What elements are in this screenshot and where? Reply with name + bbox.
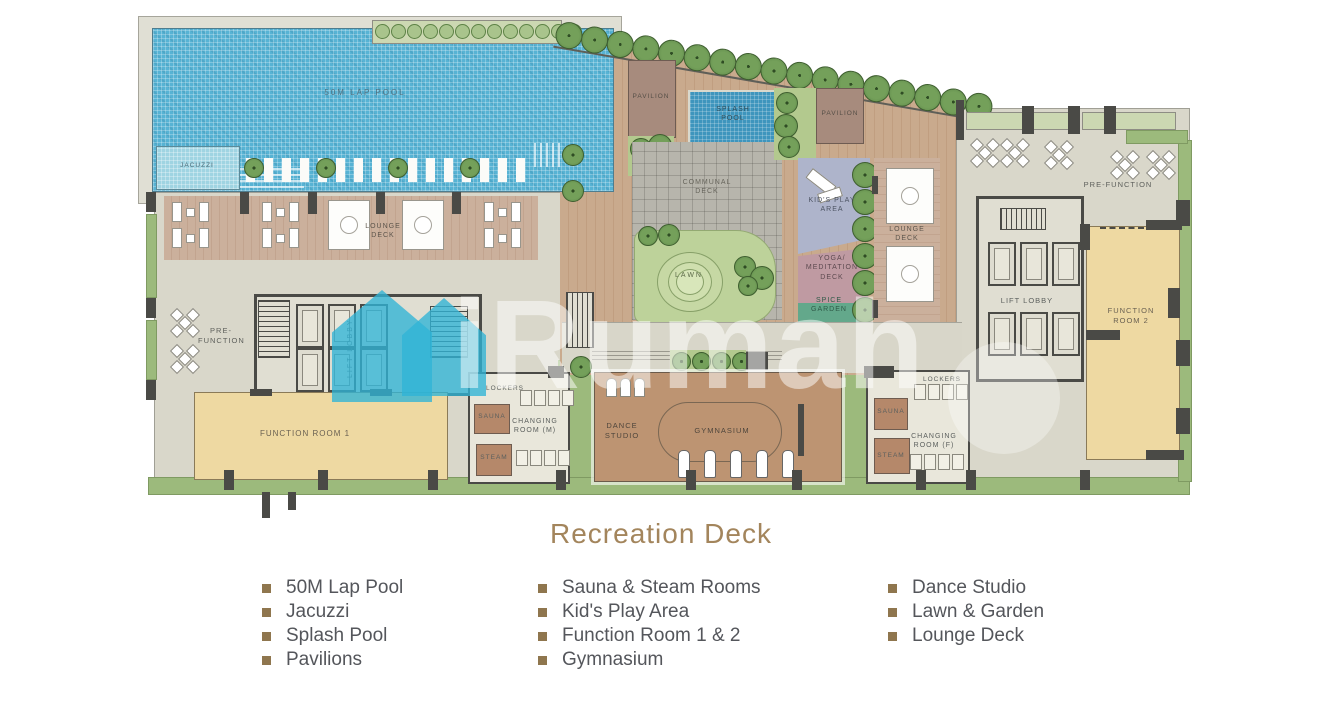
shrub-icon <box>487 24 502 39</box>
column <box>556 470 566 490</box>
tree-icon <box>658 224 680 246</box>
wall-segment <box>548 366 564 378</box>
chair-pair-icon <box>484 228 521 248</box>
shrub-icon <box>471 24 486 39</box>
tree-icon <box>712 352 731 371</box>
edge-planter <box>146 214 157 298</box>
chair-pair-icon <box>262 202 299 222</box>
tree-icon <box>682 42 713 73</box>
legend-bullet-icon <box>538 656 547 665</box>
sofa-set-icon <box>886 246 934 302</box>
planter-box <box>966 112 1076 130</box>
table-icon <box>1002 140 1028 166</box>
tree-icon <box>774 114 798 138</box>
column <box>146 192 156 212</box>
tree-icon <box>778 136 800 158</box>
column <box>916 470 926 490</box>
label-lift-lobby-left: LIFT LOBBY <box>346 316 360 380</box>
locker-cells <box>910 454 964 470</box>
legend-column-3: Dance Studio Lawn & Garden Lounge Deck <box>888 576 1044 648</box>
legend-item: Sauna & Steam Rooms <box>538 576 761 600</box>
legend-item: 50M Lap Pool <box>262 576 403 600</box>
legend-bullet-icon <box>262 584 271 593</box>
tree-icon <box>886 78 917 109</box>
locker-icon <box>548 390 560 406</box>
elevator-icon <box>1020 242 1048 286</box>
wall-segment <box>746 352 768 370</box>
tree-icon <box>672 352 691 371</box>
page-title: Recreation Deck <box>0 518 1322 550</box>
label-function-room-1: FUNCTION ROOM 1 <box>250 429 360 440</box>
stairs-icon <box>258 300 290 358</box>
mirror-icon <box>606 378 617 397</box>
legend-item-label: Gymnasium <box>562 649 663 671</box>
column <box>318 470 328 490</box>
label-sauna-f: SAUNA <box>874 408 908 417</box>
label-lockers-m: LOCKERS <box>478 385 532 394</box>
column <box>376 192 385 214</box>
locker-icon <box>530 450 542 466</box>
label-function-room-2: FUNCTION ROOM 2 <box>1104 306 1158 326</box>
locker-icon <box>942 384 954 400</box>
label-pavilion-right: PAVILION <box>813 110 867 119</box>
legend-bullet-icon <box>262 608 271 617</box>
tree-icon <box>912 82 943 113</box>
wall-segment <box>872 176 878 194</box>
stairs-icon <box>430 306 468 358</box>
label-pavilion-left: PAVILION <box>624 93 678 102</box>
locker-icon <box>924 454 936 470</box>
label-lounge-left: LOUNGE DECK <box>360 222 406 241</box>
planter-box <box>1082 112 1176 130</box>
column <box>146 380 156 400</box>
label-pre-function-left: PRE-FUNCTION <box>198 326 244 346</box>
legend-bullet-icon <box>538 608 547 617</box>
legend-column-2: Sauna & Steam Rooms Kid's Play Area Func… <box>538 576 761 672</box>
column <box>1022 106 1034 134</box>
label-kids-play: KID'S PLAY AREA <box>808 196 856 215</box>
tree-icon <box>758 55 789 86</box>
wall-segment <box>864 366 894 378</box>
mirror-icon <box>620 378 631 397</box>
floor-plan-canvas: 50M LAP POOL JACUZZI PAVILION SPLASH POO… <box>0 0 1322 701</box>
tree-icon <box>605 29 636 60</box>
treadmill-icon <box>704 450 716 478</box>
elevator-icon <box>1052 312 1080 356</box>
locker-cells <box>516 450 570 466</box>
table-icon <box>972 140 998 166</box>
shrub-icon <box>519 24 534 39</box>
legend-bullet-icon <box>538 632 547 641</box>
wall-segment <box>1086 330 1120 340</box>
legend-item-label: Function Room 1 & 2 <box>562 625 740 647</box>
tree-icon <box>707 47 738 78</box>
legend-item-label: Jacuzzi <box>286 601 349 623</box>
column <box>1176 340 1190 366</box>
elevator-icon <box>1052 242 1080 286</box>
legend-item: Dance Studio <box>888 576 1044 600</box>
tree-icon <box>553 20 584 51</box>
pool-steps <box>534 143 560 167</box>
label-changing-m: CHANGING ROOM (M) <box>504 417 566 436</box>
legend-bullet-icon <box>888 632 897 641</box>
shrub-icon <box>455 24 470 39</box>
chair-pair-icon <box>172 228 209 248</box>
locker-cells <box>914 384 968 400</box>
treadmill-icon <box>730 450 742 478</box>
locker-icon <box>956 384 968 400</box>
chair-pair-icon <box>262 228 299 248</box>
legend-item: Jacuzzi <box>262 600 403 624</box>
green-strip-top-right <box>1126 130 1188 144</box>
tree-icon <box>784 60 815 91</box>
tree-icon <box>562 144 584 166</box>
locker-icon <box>938 454 950 470</box>
label-lounge-right: LOUNGE DECK <box>884 225 930 244</box>
shrub-icon <box>423 24 438 39</box>
legend-bullet-icon <box>888 608 897 617</box>
column <box>146 298 156 318</box>
equipment-rack <box>798 404 804 456</box>
elevator-icon <box>988 242 1016 286</box>
legend-item-label: Kid's Play Area <box>562 601 689 623</box>
column <box>240 192 249 214</box>
label-changing-f: CHANGING ROOM (F) <box>902 432 966 451</box>
label-splash-pool: SPLASH POOL <box>712 105 754 124</box>
top-planter-row <box>372 20 562 44</box>
zone-function-room-2 <box>1086 226 1180 460</box>
locker-icon <box>910 454 922 470</box>
locker-icon <box>952 454 964 470</box>
tree-icon <box>388 158 408 178</box>
sofa-set-icon <box>402 200 444 250</box>
elevator-icon <box>296 348 324 392</box>
table-icon <box>1046 142 1072 168</box>
stairs-icon <box>566 292 594 348</box>
label-lawn: LAWN <box>665 271 713 280</box>
legend-item-label: Lawn & Garden <box>912 601 1044 623</box>
locker-icon <box>534 390 546 406</box>
sofa-set-icon <box>886 168 934 224</box>
treadmill-icon <box>756 450 768 478</box>
elevator-icon <box>360 348 388 392</box>
tree-icon <box>562 180 584 202</box>
elevator-icon <box>1020 312 1048 356</box>
label-jacuzzi: JACUZZI <box>160 162 234 171</box>
wall-segment <box>956 100 964 140</box>
legend-item-label: Pavilions <box>286 649 362 671</box>
column <box>308 192 317 214</box>
table-icon <box>172 346 198 372</box>
column <box>1080 470 1090 490</box>
label-steam-f: STEAM <box>874 452 908 461</box>
legend-item: Lawn & Garden <box>888 600 1044 624</box>
tree-icon <box>692 352 711 371</box>
legend-item-label: 50M Lap Pool <box>286 577 403 599</box>
stairs-icon <box>1000 208 1046 230</box>
shrub-icon <box>407 24 422 39</box>
legend-item: Kid's Play Area <box>538 600 761 624</box>
shrub-icon <box>439 24 454 39</box>
tree-icon <box>861 73 892 104</box>
wall-segment <box>370 389 392 396</box>
column <box>966 470 976 490</box>
legend-item: Pavilions <box>262 648 403 672</box>
column <box>452 192 461 214</box>
tree-icon <box>738 276 758 296</box>
column <box>428 470 438 490</box>
label-steam-m: STEAM <box>478 454 510 463</box>
edge-planter <box>146 320 157 380</box>
table-icon <box>172 310 198 336</box>
elevator-icon <box>988 312 1016 356</box>
legend-item-label: Sauna & Steam Rooms <box>562 577 761 599</box>
tree-icon <box>579 24 610 55</box>
table-icon <box>1112 152 1138 178</box>
shrub-icon <box>503 24 518 39</box>
label-gym: GYMNASIUM <box>682 426 762 436</box>
mirror-icon <box>634 378 645 397</box>
tree-icon <box>733 51 764 82</box>
tree-icon <box>316 158 336 178</box>
legend-item-label: Splash Pool <box>286 625 387 647</box>
legend-item: Splash Pool <box>262 624 403 648</box>
shrub-icon <box>375 24 390 39</box>
elevator-icon <box>296 304 324 348</box>
column <box>792 470 802 490</box>
legend-item-label: Dance Studio <box>912 577 1026 599</box>
label-pre-function-right: PRE-FUNCTION <box>1072 180 1164 190</box>
legend-item-label: Lounge Deck <box>912 625 1024 647</box>
wall-segment <box>1080 224 1090 250</box>
legend-column-1: 50M Lap Pool Jacuzzi Splash Pool Pavilio… <box>262 576 403 672</box>
label-lockers-f: LOCKERS <box>915 376 969 385</box>
label-lap-pool: 50M LAP POOL <box>300 88 430 99</box>
legend-item: Function Room 1 & 2 <box>538 624 761 648</box>
legend-bullet-icon <box>888 584 897 593</box>
tree-icon <box>776 92 798 114</box>
label-dance: DANCE STUDIO <box>598 421 646 441</box>
wall-segment <box>250 389 272 396</box>
table-icon <box>1148 152 1174 178</box>
wall-segment <box>872 300 878 318</box>
locker-icon <box>928 384 940 400</box>
operable-wall <box>1100 227 1144 229</box>
legend-item: Gymnasium <box>538 648 761 672</box>
wall-segment <box>1168 288 1180 318</box>
label-communal-deck: COMMUNAL DECK <box>678 178 736 197</box>
column-stub <box>288 492 296 510</box>
locker-icon <box>516 450 528 466</box>
column <box>1176 408 1190 434</box>
legend-bullet-icon <box>262 656 271 665</box>
column <box>1176 200 1190 226</box>
shrub-icon <box>535 24 550 39</box>
chair-pair-icon <box>172 202 209 222</box>
tree-icon <box>638 226 658 246</box>
shrub-icon <box>391 24 406 39</box>
column <box>686 470 696 490</box>
locker-icon <box>544 450 556 466</box>
label-spice: SPICE GARDEN <box>806 296 852 315</box>
column <box>1068 106 1080 134</box>
tree-icon <box>460 158 480 178</box>
elevator-icon <box>360 304 388 348</box>
elevator-bank <box>988 312 1080 356</box>
label-yoga: YOGA/ MEDITATION DECK <box>798 254 866 282</box>
column-stub <box>262 492 270 518</box>
chair-pair-icon <box>484 202 521 222</box>
tree-icon <box>244 158 264 178</box>
locker-icon <box>562 390 574 406</box>
tree-icon <box>570 356 592 378</box>
label-lift-lobby-right: LIFT LOBBY <box>994 296 1060 306</box>
locker-icon <box>914 384 926 400</box>
wall-segment <box>1146 450 1184 460</box>
elevator-bank <box>296 348 388 392</box>
column <box>224 470 234 490</box>
legend-bullet-icon <box>262 632 271 641</box>
legend-bullet-icon <box>538 584 547 593</box>
legend-item: Lounge Deck <box>888 624 1044 648</box>
elevator-bank <box>296 304 388 348</box>
elevator-bank <box>988 242 1080 286</box>
locker-icon <box>558 450 570 466</box>
column <box>1104 106 1116 134</box>
